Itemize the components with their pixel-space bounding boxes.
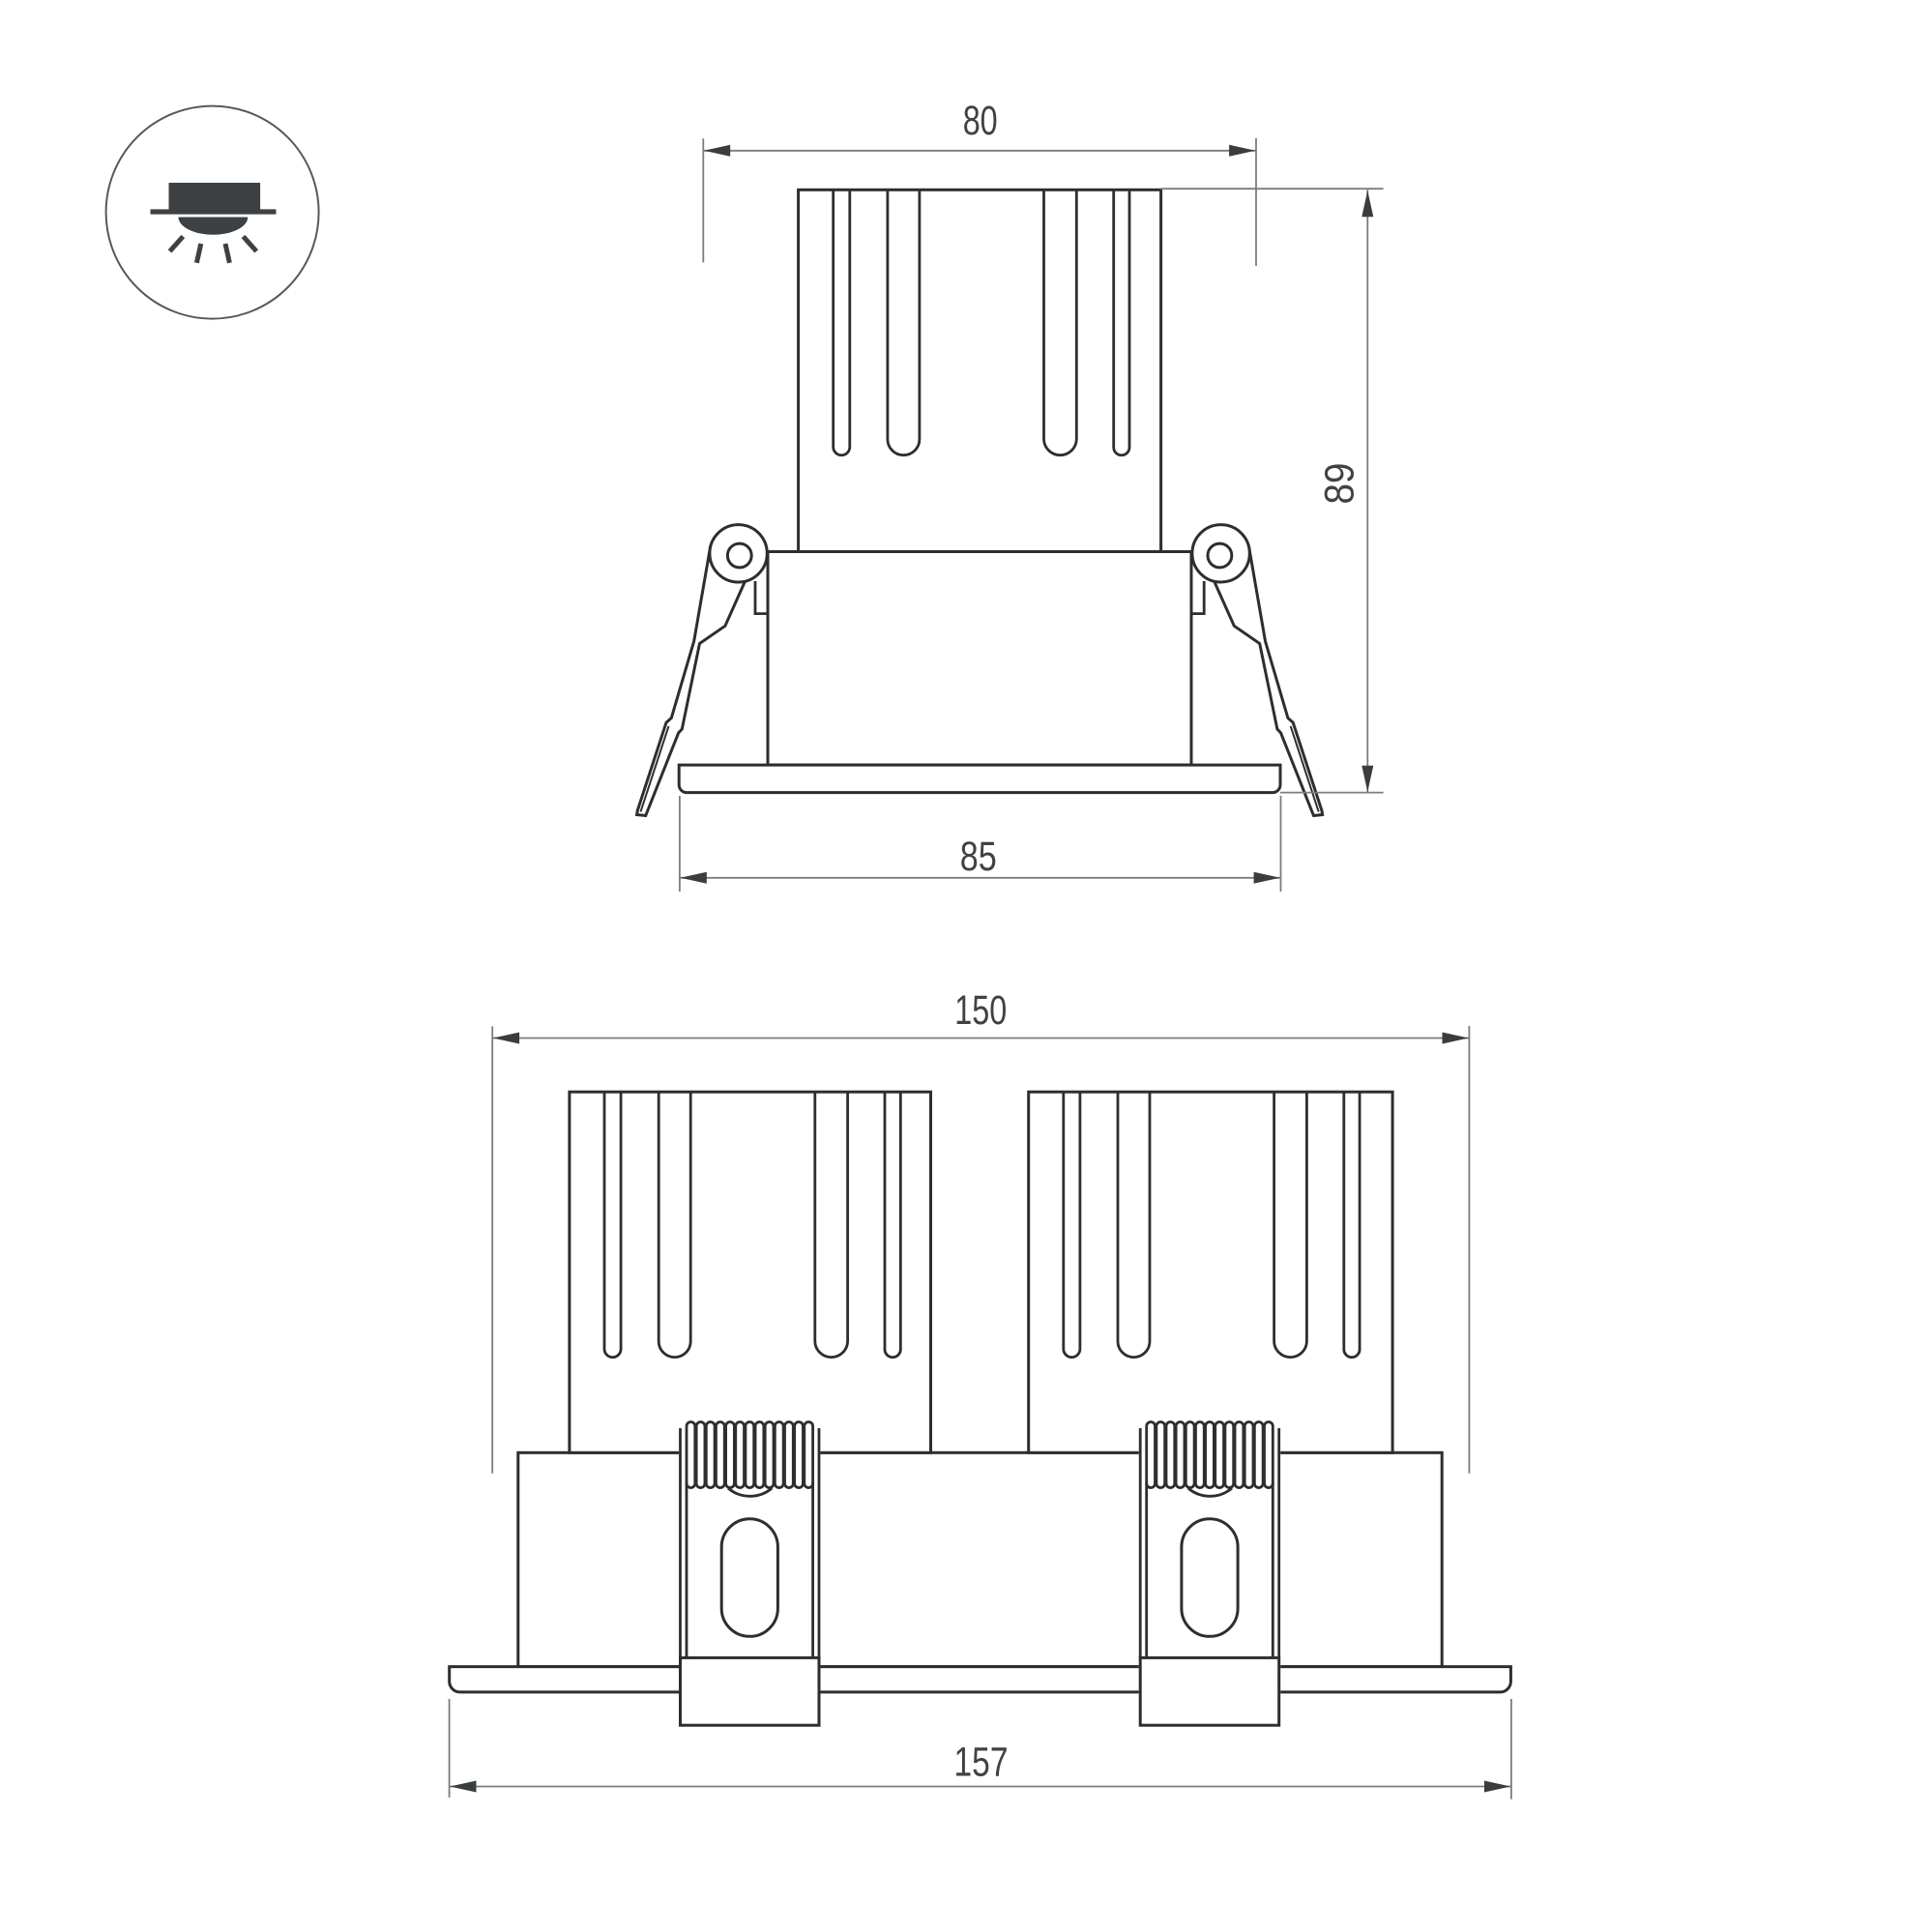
svg-text:85: 85 <box>960 834 997 880</box>
svg-text:89: 89 <box>1317 463 1363 505</box>
svg-text:157: 157 <box>954 1740 1009 1786</box>
svg-text:80: 80 <box>963 98 998 144</box>
svg-text:150: 150 <box>954 987 1007 1034</box>
